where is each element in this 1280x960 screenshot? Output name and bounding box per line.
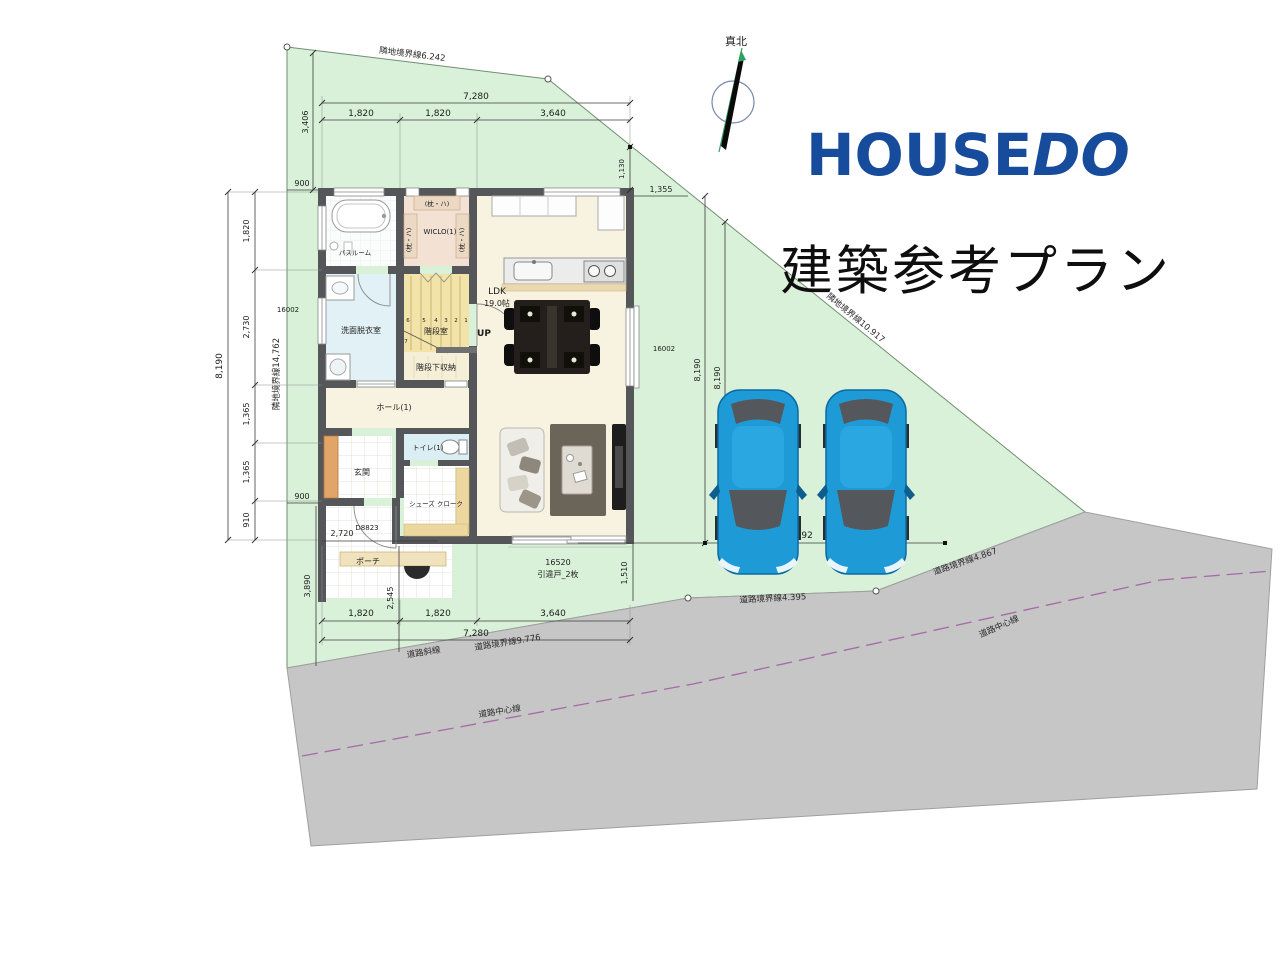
- window-code-left: 16002: [277, 306, 299, 314]
- dim: 900: [294, 492, 309, 501]
- north-compass: 真北: [712, 34, 754, 152]
- wiclo-shelf-label-right: (枕・ハ): [457, 228, 466, 253]
- entry-door-code: D8823: [355, 524, 378, 532]
- dim: 2,730: [242, 316, 251, 339]
- wiclo-shelf-label-left: (枕・ハ): [404, 228, 413, 253]
- stair-floor: [404, 274, 469, 352]
- logo-house-text: HOUSE: [806, 121, 1032, 189]
- entrance-label: 玄関: [354, 467, 370, 477]
- stair-num: 5: [422, 318, 426, 324]
- stair-num: 3: [444, 318, 448, 324]
- stair-num: 2: [454, 318, 458, 324]
- dim: 8,190: [693, 359, 702, 382]
- wiclo-label: WICLO(1): [424, 228, 457, 236]
- north-label: 真北: [725, 34, 747, 48]
- dim: 1,365: [242, 403, 251, 426]
- dim: 2,545: [386, 587, 395, 610]
- stair-num: 6: [406, 318, 410, 324]
- compass-needle: [721, 54, 744, 150]
- front-window-type: 引違戸_2枚: [537, 569, 578, 579]
- porch-label: ポーチ: [356, 557, 380, 566]
- dim: 1,820: [348, 109, 374, 119]
- logo-do-text: DO: [1032, 121, 1129, 189]
- washroom-label: 洗面脱衣室: [341, 325, 381, 335]
- wiclo-shelf-label-top: (枕・ハ): [425, 199, 450, 208]
- toilet-fixture: [441, 440, 467, 454]
- dim: 1,820: [348, 609, 374, 619]
- dim: 8,190: [215, 353, 225, 379]
- stair-room-label: 階段室: [424, 326, 448, 336]
- car-right: [817, 390, 915, 574]
- dim: 1,130: [618, 159, 626, 179]
- dim: 2,720: [331, 529, 354, 538]
- stair-num: 4: [434, 318, 438, 324]
- dining-set: [504, 300, 600, 374]
- dim: 910: [242, 512, 251, 527]
- ldk-label: LDK: [488, 287, 507, 297]
- stair-shelf: [436, 347, 477, 353]
- dim: 1,355: [650, 185, 673, 194]
- dim: 1,365: [242, 461, 251, 484]
- boundary-label-left: 隣地境界線14,762: [271, 338, 282, 410]
- dim: 3,890: [303, 575, 312, 598]
- dim: 3,406: [301, 111, 310, 134]
- coffee-table: [562, 446, 592, 494]
- hall-label: ホール(1): [376, 403, 411, 412]
- ldk-size-label: 19.0帖: [484, 298, 510, 308]
- site-plan-page: バスルーム (枕・ハ) WICLO(1) (枕・ハ) (枕・ハ) 洗面脱衣室 L…: [0, 0, 1280, 960]
- shoe-cabinet: [324, 436, 338, 498]
- dim: 8,190: [713, 367, 722, 390]
- housedo-logo: HOUSEDO: [806, 126, 1130, 184]
- toilet-label: トイレ(1): [413, 444, 444, 452]
- dim: 3,640: [540, 609, 566, 619]
- under-stair-label: 階段下収納: [416, 362, 456, 372]
- stair-landing-num: 7: [404, 339, 408, 345]
- car-left: [709, 390, 807, 574]
- stair-up-label: UP: [477, 329, 491, 339]
- dim: 1,820: [425, 609, 451, 619]
- plan-title: 建築参考プラン: [780, 242, 1172, 303]
- dim: 1,510: [620, 562, 629, 585]
- bathroom-label: バスルーム: [339, 249, 372, 257]
- dim: 3,640: [540, 109, 566, 119]
- shoe-closet-label: シューズ クローク: [409, 499, 463, 508]
- dim: 1,820: [242, 220, 251, 243]
- dim: 7,280: [463, 92, 489, 102]
- dim: 900: [294, 179, 309, 188]
- dim: 7,280: [463, 629, 489, 639]
- stair-num: 1: [464, 318, 468, 324]
- dim: 1,820: [425, 109, 451, 119]
- kitchen-sink: [514, 262, 552, 280]
- front-window-code: 16520: [545, 558, 570, 567]
- window-code-right: 16002: [653, 345, 675, 353]
